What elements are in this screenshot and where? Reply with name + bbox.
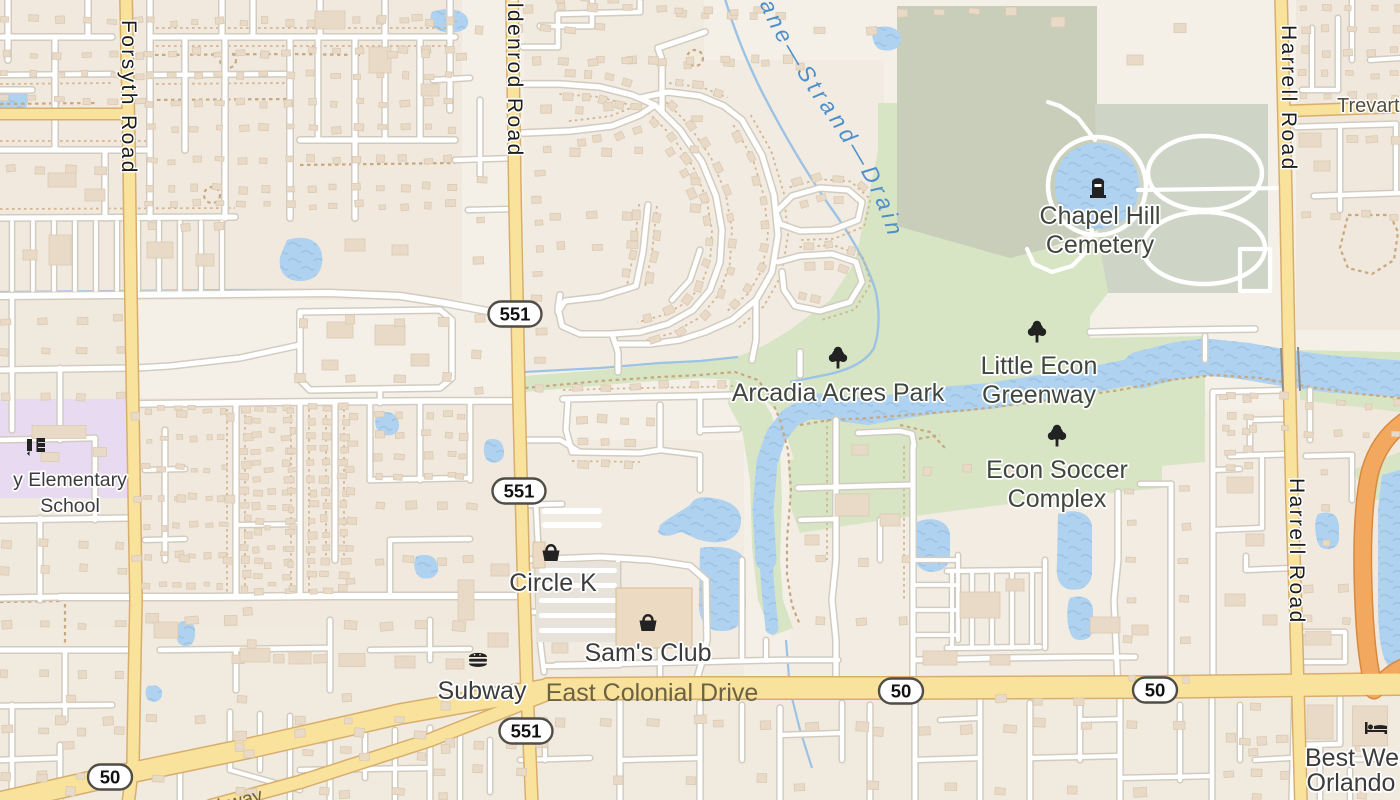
svg-text:50: 50 xyxy=(100,767,121,788)
svg-text:Circle K: Circle K xyxy=(509,569,597,597)
svg-text:East Colonial Drive: East Colonial Drive xyxy=(546,679,759,707)
svg-text:Trevarthon: Trevarthon xyxy=(1337,95,1400,117)
svg-text:Chapel Hill: Chapel Hill xyxy=(1040,202,1161,230)
svg-text:Subway: Subway xyxy=(438,677,527,705)
svg-text:Greenway: Greenway xyxy=(982,381,1096,409)
svg-text:Harrell Road: Harrell Road xyxy=(1285,478,1308,625)
svg-text:Little Econ: Little Econ xyxy=(981,352,1098,380)
svg-text:Orlando: Orlando xyxy=(1307,769,1396,797)
svg-text:Goldenrod Road: Goldenrod Road xyxy=(503,0,526,158)
svg-text:551: 551 xyxy=(511,721,542,742)
svg-text:y Elementary: y Elementary xyxy=(13,469,127,491)
svg-text:Cemetery: Cemetery xyxy=(1046,231,1155,259)
svg-text:School: School xyxy=(40,495,100,517)
svg-text:50: 50 xyxy=(1145,680,1166,701)
svg-text:Arcadia Acres Park: Arcadia Acres Park xyxy=(732,379,945,407)
svg-text:Best Western: Best Western xyxy=(1305,744,1400,772)
svg-text:551: 551 xyxy=(500,304,531,325)
svg-text:551: 551 xyxy=(504,481,535,502)
svg-text:50: 50 xyxy=(891,681,912,702)
svg-text:Complex: Complex xyxy=(1008,485,1107,513)
svg-text:Forsyth Road: Forsyth Road xyxy=(117,20,140,175)
svg-text:Sam's Club: Sam's Club xyxy=(584,639,711,667)
svg-text:Harrell Road: Harrell Road xyxy=(1277,25,1300,172)
svg-text:Econ Soccer: Econ Soccer xyxy=(986,456,1128,484)
